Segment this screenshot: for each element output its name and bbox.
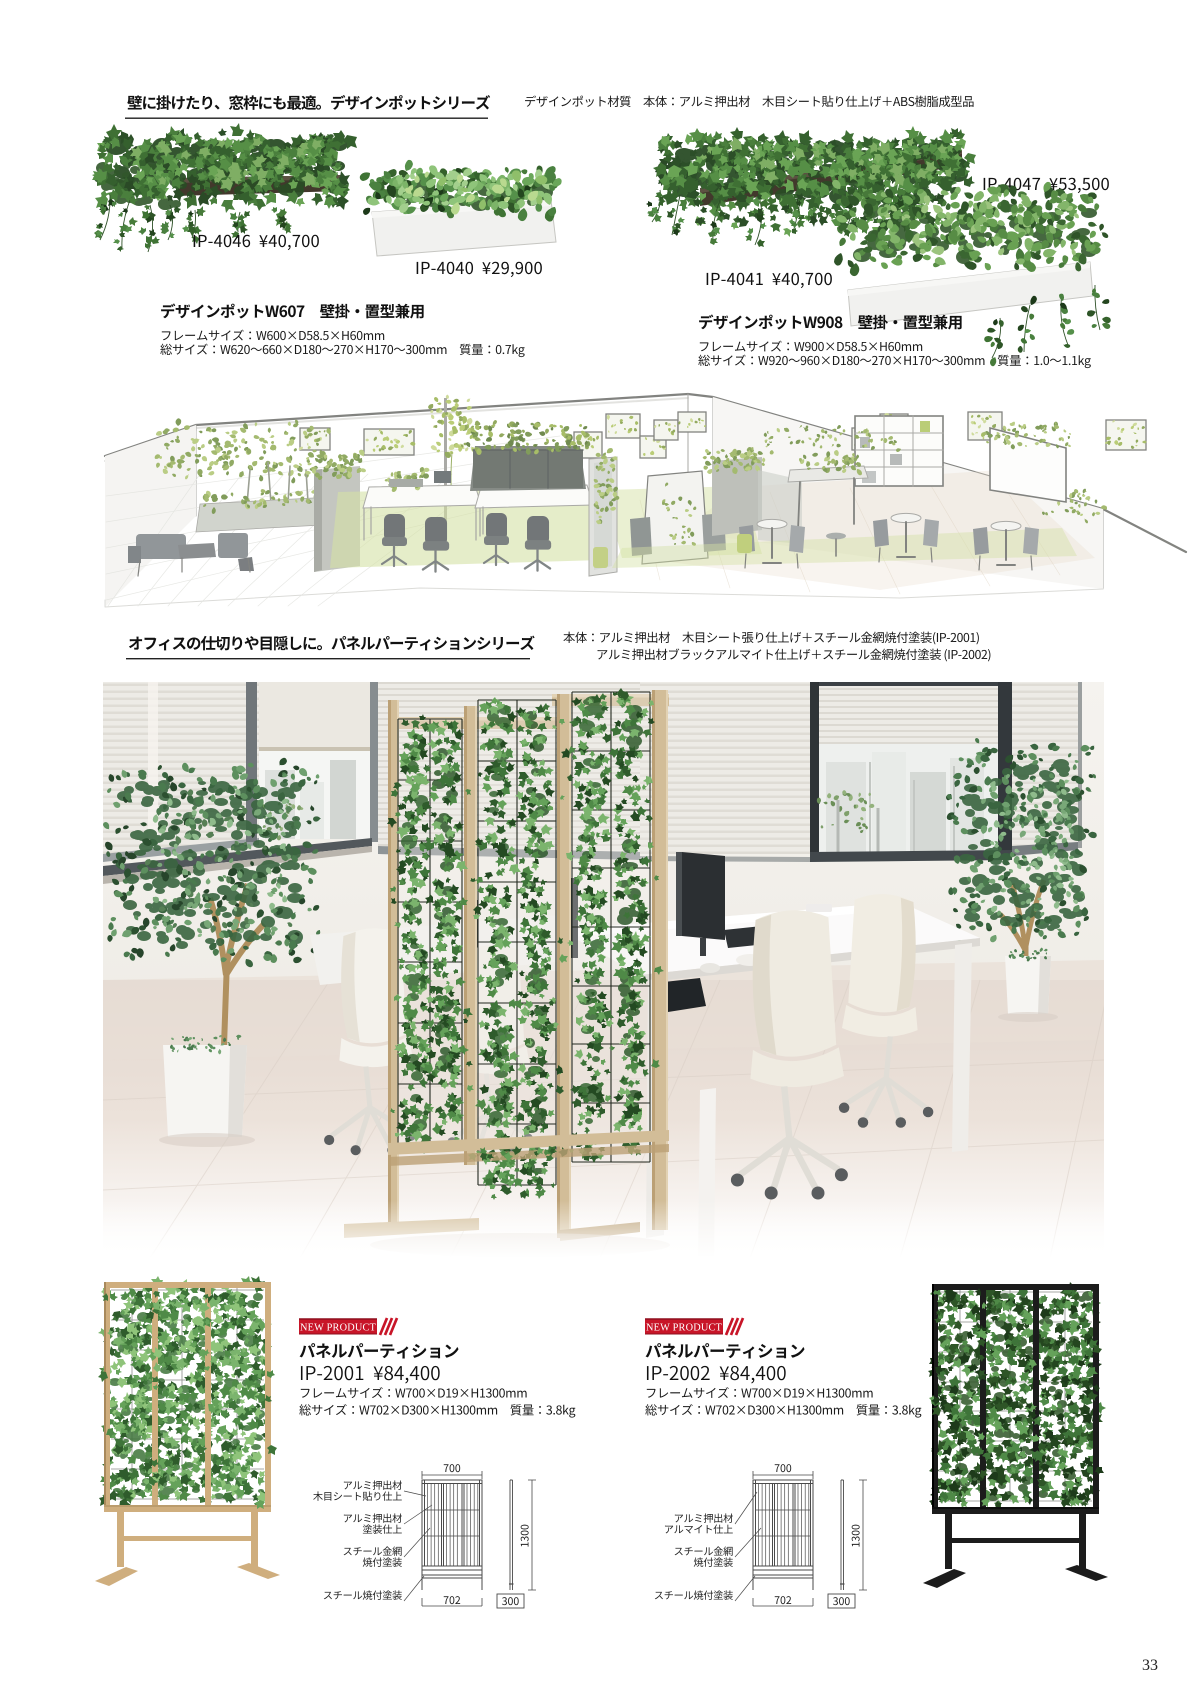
- svg-text:NEW PRODUCT: NEW PRODUCT: [300, 1323, 377, 1334]
- svg-text:NEW PRODUCT: NEW PRODUCT: [646, 1323, 723, 1334]
- svg-text:33: 33: [1142, 1657, 1158, 1674]
